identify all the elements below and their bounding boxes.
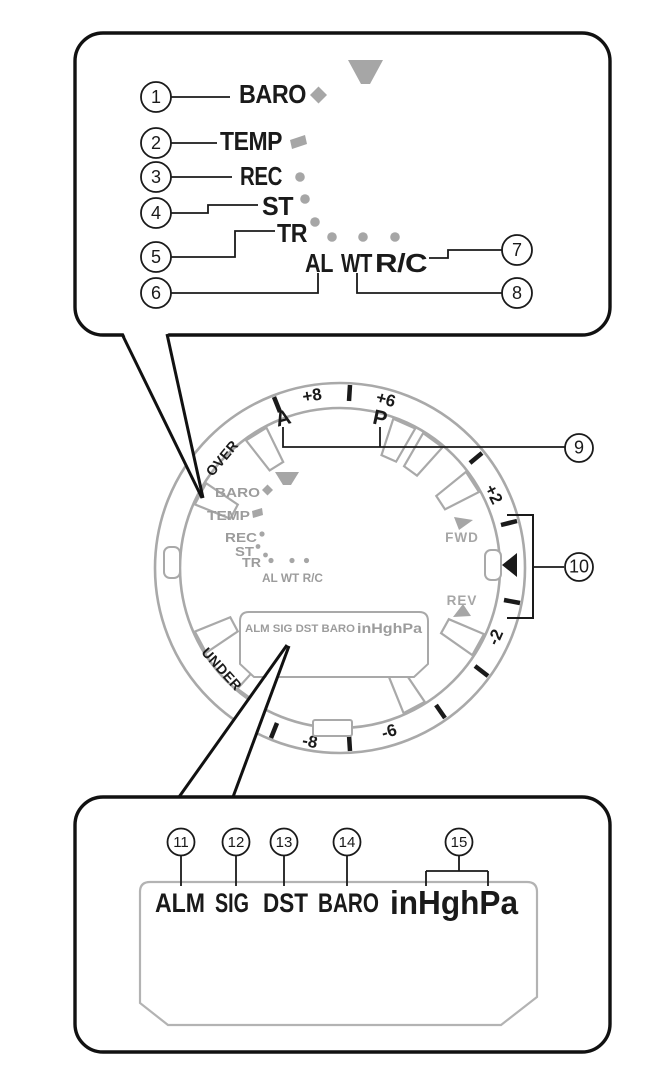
callout-5-number: 5 xyxy=(151,247,161,267)
scale-tick xyxy=(271,723,277,738)
mini-baro-label: BARO xyxy=(215,485,260,500)
baro2-label: BARO xyxy=(318,888,379,918)
dial-lcd-units-label: inHghPa xyxy=(357,621,423,636)
callout-7-number: 7 xyxy=(512,240,522,260)
mini-st-dot-icon xyxy=(256,544,261,549)
six-oclock-window xyxy=(313,720,352,736)
mini-diamond-icon xyxy=(262,485,273,496)
scale-tick xyxy=(504,600,520,603)
figure-canvas: +8 +6 +2 -2 -6 -8 A P OVER UNDER FWD REV… xyxy=(0,0,667,1073)
scale-tick xyxy=(470,453,482,463)
fwd-label: FWD xyxy=(445,530,479,545)
band-pointer-icon xyxy=(502,553,517,577)
temp-label: TEMP xyxy=(220,126,282,156)
callout-1-number: 1 xyxy=(151,87,161,107)
callout-9-number: 9 xyxy=(574,438,584,458)
tr-dot-icon xyxy=(310,217,320,227)
dst-label: DST xyxy=(263,888,308,918)
rec-dot-icon xyxy=(295,172,305,182)
indicator-dot-icon xyxy=(390,232,400,242)
rec-label: REC xyxy=(240,161,283,191)
watch-manual-figure: +8 +6 +2 -2 -6 -8 A P OVER UNDER FWD REV… xyxy=(0,0,667,1073)
tr-label: TR xyxy=(277,218,308,248)
top-callout-panel: BARO TEMP REC ST TR AL WT R/C 1 2 3 4 xyxy=(75,33,610,498)
indicator-dot-icon xyxy=(358,232,368,242)
al-label: AL xyxy=(305,248,334,278)
callout-4-number: 4 xyxy=(151,203,161,223)
mini-tr-label: TR xyxy=(242,556,261,570)
mini-rec-label: REC xyxy=(225,531,257,545)
scale-tick xyxy=(349,735,350,751)
mini-pennant-icon xyxy=(252,508,263,518)
callout-8-number: 8 xyxy=(512,283,522,303)
baro-label: BARO xyxy=(239,79,306,109)
st-dot-icon xyxy=(300,194,310,204)
callout-15-number: 15 xyxy=(451,834,468,851)
mini-dot-icon xyxy=(304,558,309,563)
indicator-dot-icon xyxy=(327,232,337,242)
st-label: ST xyxy=(262,191,294,221)
callout-6-number: 6 xyxy=(151,283,161,303)
bottom-callout-panel: ALM SIG DST BARO inHghPa 11 12 13 14 15 xyxy=(75,645,610,1052)
fwd-arrow-icon xyxy=(454,517,473,530)
mini-dot-icon xyxy=(268,558,273,563)
mini-tr-dot-icon xyxy=(263,553,268,558)
scale-label-minus6: -6 xyxy=(379,720,399,743)
mini-rec-dot-icon xyxy=(259,531,264,536)
units-label: inHghPa xyxy=(390,884,519,921)
dial-outer-ring xyxy=(155,383,525,753)
left-notch xyxy=(164,547,180,578)
scale-tick xyxy=(501,521,517,525)
alm-label: ALM xyxy=(155,888,205,918)
dial-lcd-row-label: ALM SIG DST BARO xyxy=(245,623,355,635)
scale-label-plus2: +2 xyxy=(481,481,507,507)
under-label: UNDER xyxy=(199,644,246,694)
callout-11-number: 11 xyxy=(173,834,189,851)
rc-label: R/C xyxy=(375,248,428,278)
scale-tick xyxy=(349,385,350,401)
mini-al-wt-rc-label: AL WT R/C xyxy=(262,571,323,585)
callout-14-number: 14 xyxy=(339,834,356,851)
mini-dot-icon xyxy=(289,558,294,563)
callout-3-number: 3 xyxy=(151,167,161,187)
scale-tick xyxy=(475,666,488,676)
scale-tick xyxy=(436,705,445,718)
over-label: OVER xyxy=(202,437,241,479)
callout-2-number: 2 xyxy=(151,133,161,153)
mini-triangle-icon xyxy=(275,472,299,485)
scale-label-plus8: +8 xyxy=(301,385,323,407)
callout-12-number: 12 xyxy=(228,834,245,851)
dial-lcd-window: ALM SIG DST BARO inHghPa xyxy=(240,612,428,677)
watch-dial: +8 +6 +2 -2 -6 -8 A P OVER UNDER FWD REV… xyxy=(155,383,525,753)
callout-13-number: 13 xyxy=(276,834,293,851)
callout-10-number: 10 xyxy=(569,557,589,577)
dial-mini-indicators: BARO TEMP REC ST TR AL WT R/C xyxy=(207,472,323,585)
sig-label: SIG xyxy=(215,888,249,918)
mini-temp-label: TEMP xyxy=(207,508,250,523)
right-notch xyxy=(485,550,501,580)
